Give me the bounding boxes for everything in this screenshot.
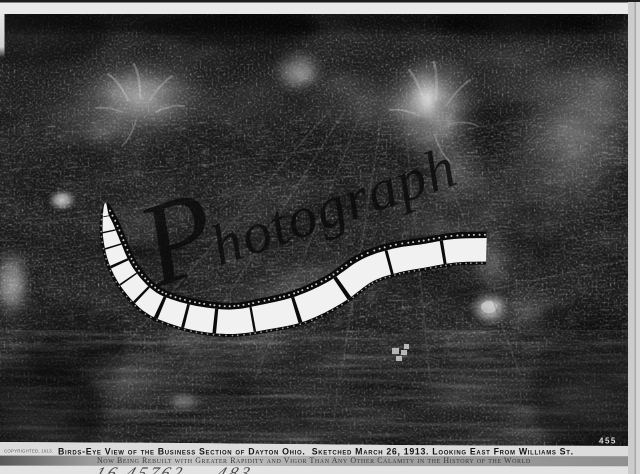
svg-text:455: 455 — [599, 437, 617, 446]
svg-text:16.45762 — 483: 16.45762 — 483 — [93, 463, 256, 474]
svg-text:Birds-Eye View of the Business: Birds-Eye View of the Business Section o… — [58, 446, 574, 456]
svg-text:COPYRIGHTED, 1913.: COPYRIGHTED, 1913. — [4, 449, 53, 454]
